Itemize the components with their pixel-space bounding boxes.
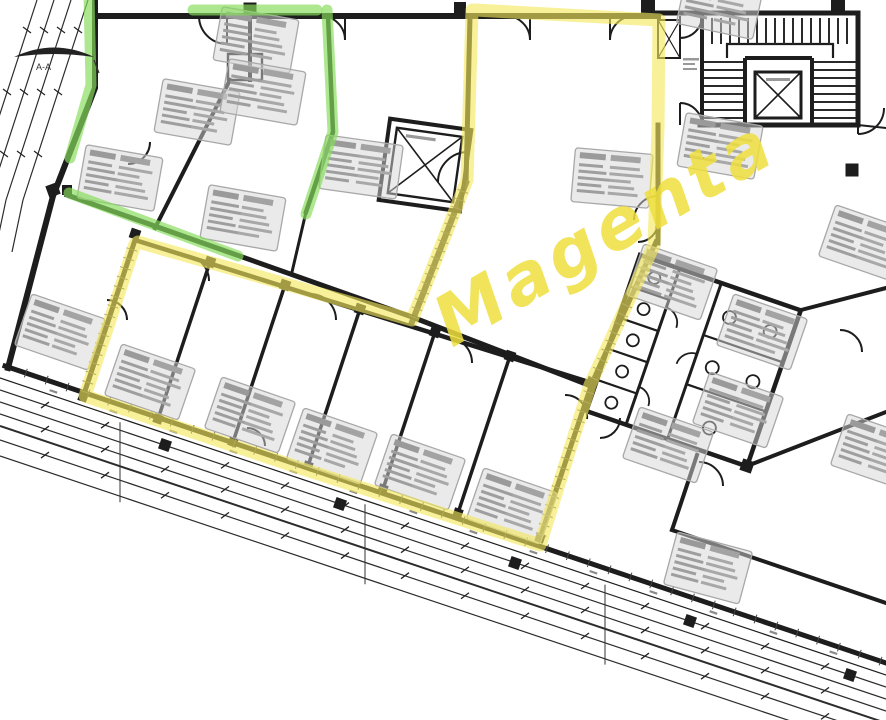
dimension-tick — [281, 506, 289, 512]
column-square — [739, 458, 754, 473]
room-info-tag — [818, 205, 886, 281]
dimension-number-smudge — [829, 650, 837, 655]
dimension-tick — [401, 573, 409, 579]
dimension-tick — [401, 523, 409, 529]
dimension-tick — [521, 613, 529, 619]
dimension-tick — [461, 567, 469, 573]
dimension-tick — [461, 593, 469, 599]
dimension-tick — [101, 446, 109, 452]
section-marker-dome-icon — [14, 48, 94, 58]
column-square — [641, 0, 655, 13]
dimension-number-smudge — [709, 610, 717, 615]
dimension-tick — [41, 452, 49, 458]
dimension-tick — [761, 667, 769, 673]
dimension-tick — [641, 653, 649, 659]
column-square — [333, 497, 347, 511]
dimension-tick — [581, 607, 589, 613]
dimension-tick — [341, 527, 349, 533]
dimension-tick — [761, 693, 769, 699]
right-wing-wall-1 — [801, 288, 886, 310]
dimension-tick — [701, 623, 709, 629]
dimension-tick — [41, 402, 49, 408]
dimension-tick — [101, 472, 109, 478]
column-square — [454, 2, 466, 14]
dimension-tick — [821, 713, 829, 719]
column-square — [843, 668, 857, 682]
staircase — [658, 18, 856, 123]
door-arc-icon — [858, 108, 884, 134]
dimension-tick — [281, 532, 289, 538]
dimension-tick — [341, 553, 349, 559]
dimension-tick — [401, 547, 409, 553]
dimension-tick — [221, 512, 229, 518]
dimension-tick — [281, 482, 289, 488]
dimension-tick — [641, 603, 649, 609]
dimension-line — [0, 0, 71, 252]
floor-plan-drawing: Magenta A-A — [0, 0, 886, 720]
dimension-tick — [581, 583, 589, 589]
dimension-tick — [461, 543, 469, 549]
floor-plan-page: Magenta A-A — [0, 0, 886, 720]
room-info-tag — [716, 294, 807, 370]
freight-elevator-label-smudge — [406, 134, 436, 141]
dimension-number-smudge — [769, 630, 777, 635]
room-info-tag — [830, 414, 886, 490]
dimension-number-smudge — [649, 590, 657, 595]
dimension-number-smudge — [49, 389, 57, 394]
right-stub-wall — [858, 125, 886, 128]
dimension-tick — [221, 486, 229, 492]
dimension-number-smudge — [589, 570, 597, 575]
dimension-tick — [0, 151, 8, 157]
dimension-line — [0, 0, 37, 252]
column-square — [508, 556, 522, 570]
dimension-tick — [701, 647, 709, 653]
dimension-tick — [161, 492, 169, 498]
dimension-tick — [581, 633, 589, 639]
dimension-tick — [34, 151, 42, 157]
dimension-tick — [521, 587, 529, 593]
dimension-tick — [161, 466, 169, 472]
dimension-tick — [821, 687, 829, 693]
dimension-tick — [521, 563, 529, 569]
dimension-tick — [821, 663, 829, 669]
door-arc-icon — [840, 330, 862, 352]
dimension-tick — [221, 462, 229, 468]
column-square — [683, 614, 697, 628]
elevator-label-smudge — [766, 78, 790, 81]
door-arc-icon — [506, 16, 530, 40]
dimension-tick — [641, 627, 649, 633]
dimension-tick — [17, 151, 25, 157]
column-square — [846, 164, 859, 177]
column-square — [158, 438, 172, 452]
duct-label-smudge — [683, 58, 699, 70]
dimension-tick — [701, 673, 709, 679]
connector-wall — [292, 212, 306, 272]
dimension-tick — [101, 422, 109, 428]
dimension-tick — [761, 643, 769, 649]
dimension-tick — [41, 426, 49, 432]
stair-landing-line — [727, 44, 833, 58]
column-square — [831, 0, 845, 13]
section-marker-label: A-A — [36, 62, 51, 72]
